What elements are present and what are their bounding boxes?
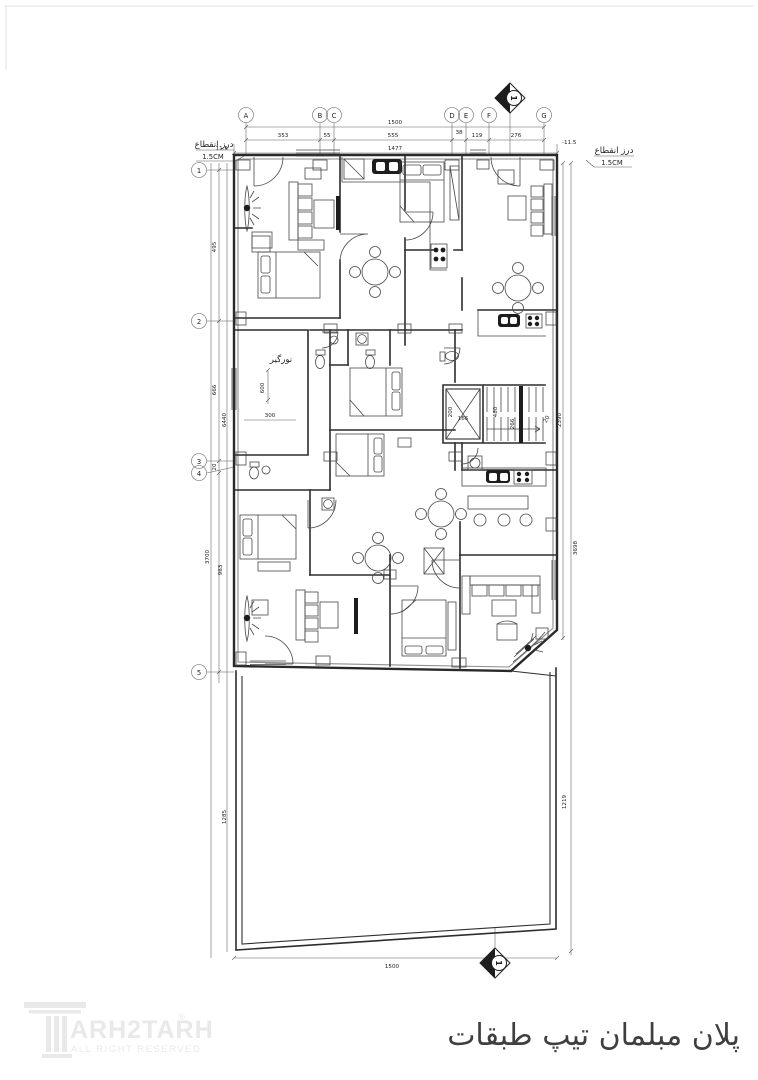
dimension-left: 495 666 20 963 6440 3700 1285 xyxy=(205,163,228,958)
lightwell-label: نورگیر xyxy=(269,354,292,365)
section-marker-bottom: 1 xyxy=(480,928,510,978)
section-no-top: 1 xyxy=(509,95,518,101)
dim-left-yard: 1285 xyxy=(222,809,228,824)
grid-row-3: 3 xyxy=(197,458,201,466)
grid-row-1: 1 xyxy=(197,167,201,175)
dim-joint-right: -11.5 xyxy=(562,140,577,146)
expansion-joint-note-right: درز انقطاع 1.5CM xyxy=(586,146,634,167)
columns xyxy=(236,160,556,667)
dim-left-total: 6440 xyxy=(222,412,228,427)
dim-elevator-w: 166 xyxy=(458,416,469,422)
section-marker-top: 1 xyxy=(495,83,525,155)
grid-col-f: F xyxy=(487,112,491,120)
dim-lightwell-w: 300 xyxy=(265,413,276,419)
dimension-right: 2390 3698 1219 xyxy=(557,161,579,955)
dim-top-seg-4: 38 xyxy=(455,130,463,136)
sofa-set-lower-right xyxy=(462,576,540,640)
dim-right-yard: 1219 xyxy=(562,794,568,809)
dim-top-overall: 1500 xyxy=(388,120,403,126)
grid-row-4: 4 xyxy=(197,470,201,478)
grid-col-d: D xyxy=(449,112,454,120)
grid-row-5: 5 xyxy=(197,669,201,677)
dim-top-seg-3: 555 xyxy=(388,133,399,139)
dim-stair-gap: 20 xyxy=(543,415,552,425)
dim-left-seg-3: 20 xyxy=(212,463,218,471)
dim-bottom-overall: 1500 xyxy=(385,964,400,970)
drawing-sheet: A B C D E F G 1500 353 55 555 38 119 276… xyxy=(0,0,758,1080)
dim-left-seg-2: 666 xyxy=(212,384,218,395)
dim-top-seg-5: 119 xyxy=(472,133,483,139)
dim-left-outer: 3700 xyxy=(205,549,211,564)
grid-row-2: 2 xyxy=(197,318,201,326)
sofa-set-top-right xyxy=(498,170,552,236)
bed-mid-2 xyxy=(322,434,384,510)
dim-left-seg-1: 495 xyxy=(212,241,218,252)
building-outline xyxy=(234,155,557,671)
interior-walls xyxy=(234,155,557,668)
dim-top-inner: 1477 xyxy=(388,146,403,152)
sofa-set-top-left xyxy=(252,168,340,252)
logo-registered: ® xyxy=(177,1013,186,1023)
scan-edge xyxy=(4,6,754,70)
dim-top-seg-1: 353 xyxy=(278,133,289,139)
grid-col-g: G xyxy=(541,112,546,120)
wall-light-symbols xyxy=(244,186,545,662)
section-no-bottom: 1 xyxy=(494,960,503,966)
stair: 480 266 20 xyxy=(487,386,552,443)
yard-outline xyxy=(236,668,556,950)
lightwell: نورگیر 600 300 xyxy=(244,354,296,420)
bed-lower-left xyxy=(240,515,296,571)
elevator: 200 166 xyxy=(446,389,480,439)
joint-label-left: درز انقطاع xyxy=(195,140,234,150)
sofa-set-lower-left xyxy=(252,590,358,642)
dim-left-seg-4: 963 xyxy=(218,564,224,575)
dining-table-3 xyxy=(416,489,467,540)
floor-plan-svg: A B C D E F G 1500 353 55 555 38 119 276… xyxy=(0,0,758,1080)
logo-tagline: ALL RIGHT RESERVED xyxy=(71,1044,201,1055)
logo-text: ARH2TARH xyxy=(70,1016,214,1044)
kitchen-top xyxy=(342,157,447,270)
joint-value-right: 1.5CM xyxy=(601,159,623,167)
kitchen-right xyxy=(478,310,546,336)
bed-top-left xyxy=(252,232,320,298)
bed-lower-center xyxy=(402,600,456,656)
dim-top-seg-6: 276 xyxy=(511,133,522,139)
grid-col-b: B xyxy=(318,112,323,120)
dim-top-seg-2: 55 xyxy=(323,133,331,139)
bed-top-center xyxy=(400,162,459,222)
dim-stair-run: 480 xyxy=(493,406,499,417)
logo: ARH2TARH ® ALL RIGHT RESERVED xyxy=(24,1002,214,1058)
drawing-title: پلان مبلمان تیپ طبقات xyxy=(447,1018,740,1053)
dim-elevator-h: 200 xyxy=(448,406,454,417)
joint-label-right: درز انقطاع xyxy=(595,146,634,156)
kitchen-lower-right xyxy=(462,468,546,526)
dim-stair-width: 266 xyxy=(510,418,516,429)
bed-mid-1 xyxy=(350,368,402,416)
dining-table-1 xyxy=(350,247,401,298)
dim-right-overall: 3698 xyxy=(573,540,579,555)
grid-col-c: C xyxy=(332,112,337,120)
dining-table-2 xyxy=(493,263,544,314)
joint-value-left: 1.5CM xyxy=(202,153,224,161)
grid-col-e: E xyxy=(464,112,468,120)
dim-lightwell-h: 600 xyxy=(260,382,266,393)
grid-col-a: A xyxy=(244,112,249,120)
windows xyxy=(232,150,555,664)
